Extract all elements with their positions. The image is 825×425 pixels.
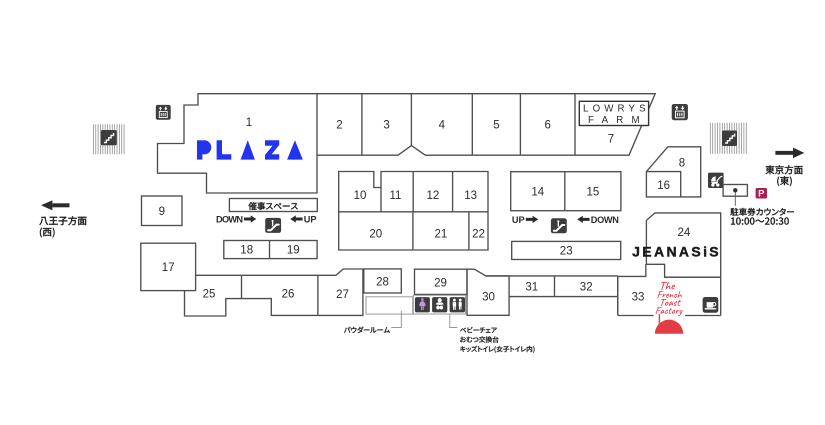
svg-text:6: 6: [544, 120, 550, 132]
svg-text:25: 25: [203, 289, 216, 301]
svg-text:22: 22: [472, 229, 485, 241]
svg-text:19: 19: [287, 245, 300, 257]
svg-text:12: 12: [427, 190, 440, 202]
svg-text:15: 15: [587, 187, 600, 199]
svg-text:31: 31: [525, 281, 538, 293]
svg-text:27: 27: [336, 289, 349, 301]
svg-text:30: 30: [482, 291, 495, 303]
svg-text:14: 14: [531, 187, 544, 199]
svg-text:29: 29: [434, 277, 447, 289]
svg-text:32: 32: [580, 281, 593, 293]
svg-text:P: P: [758, 188, 765, 199]
svg-text:21: 21: [435, 229, 448, 241]
svg-text:11: 11: [390, 190, 402, 202]
svg-text:2: 2: [336, 120, 342, 132]
svg-text:28: 28: [376, 277, 389, 289]
svg-text:5: 5: [493, 120, 499, 132]
svg-text:20: 20: [369, 229, 382, 241]
svg-text:16: 16: [657, 180, 670, 192]
svg-text:10: 10: [354, 190, 367, 202]
svg-text:13: 13: [464, 190, 477, 202]
svg-text:7: 7: [608, 134, 614, 146]
svg-text:18: 18: [240, 245, 253, 257]
svg-text:23: 23: [560, 246, 573, 258]
svg-text:8: 8: [679, 158, 685, 170]
svg-text:1: 1: [246, 117, 252, 129]
svg-text:DOWN: DOWN: [216, 214, 243, 224]
svg-text:JEANASiS: JEANASiS: [632, 244, 719, 260]
svg-text:3: 3: [383, 120, 389, 132]
svg-text:33: 33: [632, 292, 645, 304]
svg-text:17: 17: [162, 262, 175, 274]
svg-text:9: 9: [159, 206, 165, 218]
svg-text:DOWN: DOWN: [591, 215, 619, 225]
svg-text:26: 26: [282, 289, 295, 301]
svg-text:UP: UP: [512, 215, 525, 225]
svg-text:24: 24: [678, 227, 691, 239]
svg-text:4: 4: [439, 120, 446, 132]
svg-text:UP: UP: [304, 214, 317, 224]
